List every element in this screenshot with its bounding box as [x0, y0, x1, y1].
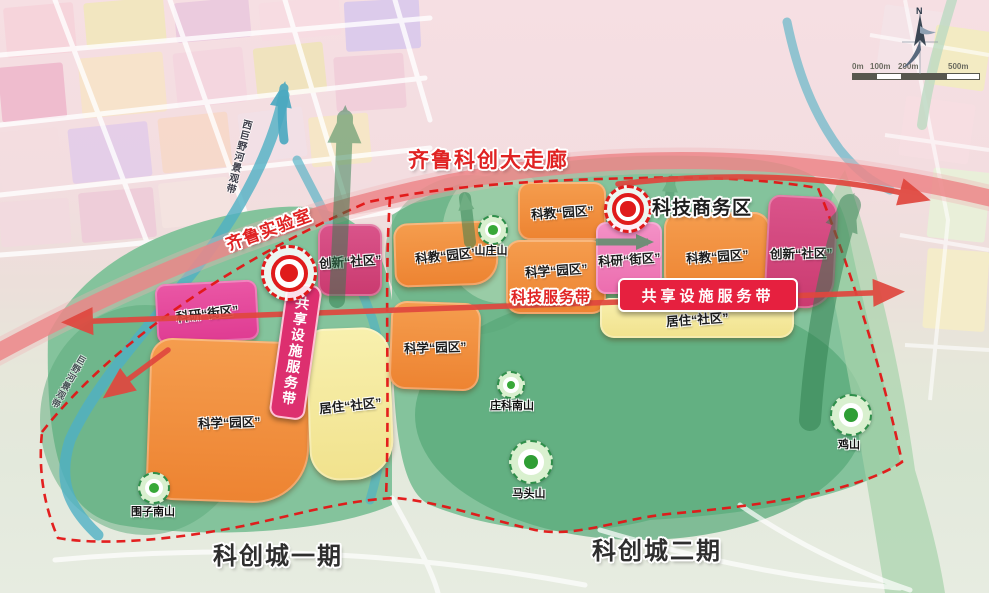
zone-kejiao-yuanqu-top: 科教“园区”	[518, 182, 606, 240]
city-block-tile	[0, 198, 71, 248]
zone-juzhu-shequ-west: 居住“社区”	[305, 327, 394, 482]
mountain-zhuangkenanshan	[497, 371, 525, 399]
mountain-ring	[145, 479, 163, 497]
city-block-tile	[253, 41, 328, 98]
tech-business-marker-core	[620, 201, 635, 216]
zone-label: 科教“园区”	[530, 199, 594, 222]
qilu-lab-marker-core	[280, 264, 298, 282]
mountain-ring	[503, 377, 518, 392]
city-block-tile	[78, 51, 168, 118]
tech-business-marker-ring	[612, 193, 644, 225]
corridor-title: 齐鲁科创大走廊	[408, 144, 569, 174]
city-block-tile	[67, 121, 152, 184]
city-block-tile	[0, 127, 63, 192]
city-block-tile	[344, 0, 422, 52]
north-label: N	[916, 6, 923, 16]
scale-segment	[947, 74, 979, 79]
zone-keyan-jiequ-west: 科研“街区”	[154, 279, 259, 344]
city-block-tile	[258, 0, 341, 41]
mountain-ring	[518, 449, 544, 475]
zone-chuangxin-shequ-west: 创新“社区”	[318, 224, 382, 296]
zone-label: 科学“园区”	[197, 410, 260, 431]
mountain-jishan	[830, 394, 872, 436]
mountain-matoushan	[509, 440, 553, 484]
city-block-tile	[0, 62, 67, 122]
city-block-tile	[158, 176, 232, 228]
city-block-tile	[78, 187, 157, 243]
mountain-core	[149, 483, 159, 493]
mountain-label: 马头山	[513, 485, 546, 501]
mountain-label: 鸡山	[838, 436, 860, 452]
scale-segment	[853, 74, 877, 79]
banner-label: 共享设施服务带	[278, 294, 313, 408]
mountain-label: 庄科南山	[490, 397, 534, 413]
planning-map: 科研“街区” 科学“园区” 居住“社区” 创新“社区” 科教“园区” 科学“园区…	[0, 0, 989, 593]
city-block-tile	[172, 46, 247, 108]
shared-facility-band-horizontal: 共享设施服务带	[618, 278, 798, 312]
zone-label: 科学“园区”	[403, 335, 466, 356]
qilu-lab-marker-ring	[271, 255, 308, 292]
city-block-tile	[922, 248, 989, 332]
city-block-tile	[173, 0, 251, 43]
mountain-core	[844, 408, 858, 422]
zone-label: 科研“街区”	[597, 246, 661, 269]
city-block-tile	[898, 95, 976, 164]
banner-label: 共享设施服务带	[641, 285, 774, 306]
scale-tick: 100m	[870, 62, 890, 71]
city-block-tile	[3, 2, 77, 58]
zone-label: 科研“街区”	[175, 299, 239, 325]
zone-label: 创新“社区”	[770, 242, 833, 262]
mountain-ring	[485, 222, 502, 239]
tech-business-marker	[604, 185, 652, 233]
mountain-core	[507, 381, 516, 390]
zone-label: 创新“社区”	[318, 248, 382, 271]
zone-label: 科教“园区”	[414, 241, 478, 266]
zone-label: 居住“社区”	[318, 391, 382, 416]
phase-two-label: 科创城二期	[592, 531, 722, 566]
zone-kexue-yuanqu-mid: 科学“园区”	[388, 300, 481, 391]
scale-tick: 0m	[852, 62, 864, 71]
city-block-tile	[308, 112, 372, 167]
north-arrow-icon	[898, 6, 942, 78]
mountain-shanzhuangshan	[478, 215, 508, 245]
scale-tick: 500m	[948, 62, 968, 71]
qilu-lab-marker	[261, 245, 317, 301]
mountain-weizinanshan	[138, 472, 170, 504]
mountain-core	[524, 455, 539, 470]
city-block-tile	[333, 53, 407, 113]
mountain-ring	[839, 403, 863, 427]
mountain-core	[488, 225, 498, 235]
mountain-label: 山庄山	[475, 242, 508, 258]
phase-one-label: 科创城一期	[213, 536, 343, 571]
zone-label: 科教“园区”	[685, 243, 749, 266]
city-block-tile	[927, 167, 989, 243]
tech-business-label: 科技商务区	[652, 193, 752, 220]
zone-label: 科学“园区”	[524, 257, 588, 280]
mountain-label: 围子南山	[131, 503, 175, 519]
city-block-tile	[83, 0, 167, 48]
service-band-label: 科技服务带	[511, 286, 591, 307]
city-block-tile	[157, 111, 232, 173]
